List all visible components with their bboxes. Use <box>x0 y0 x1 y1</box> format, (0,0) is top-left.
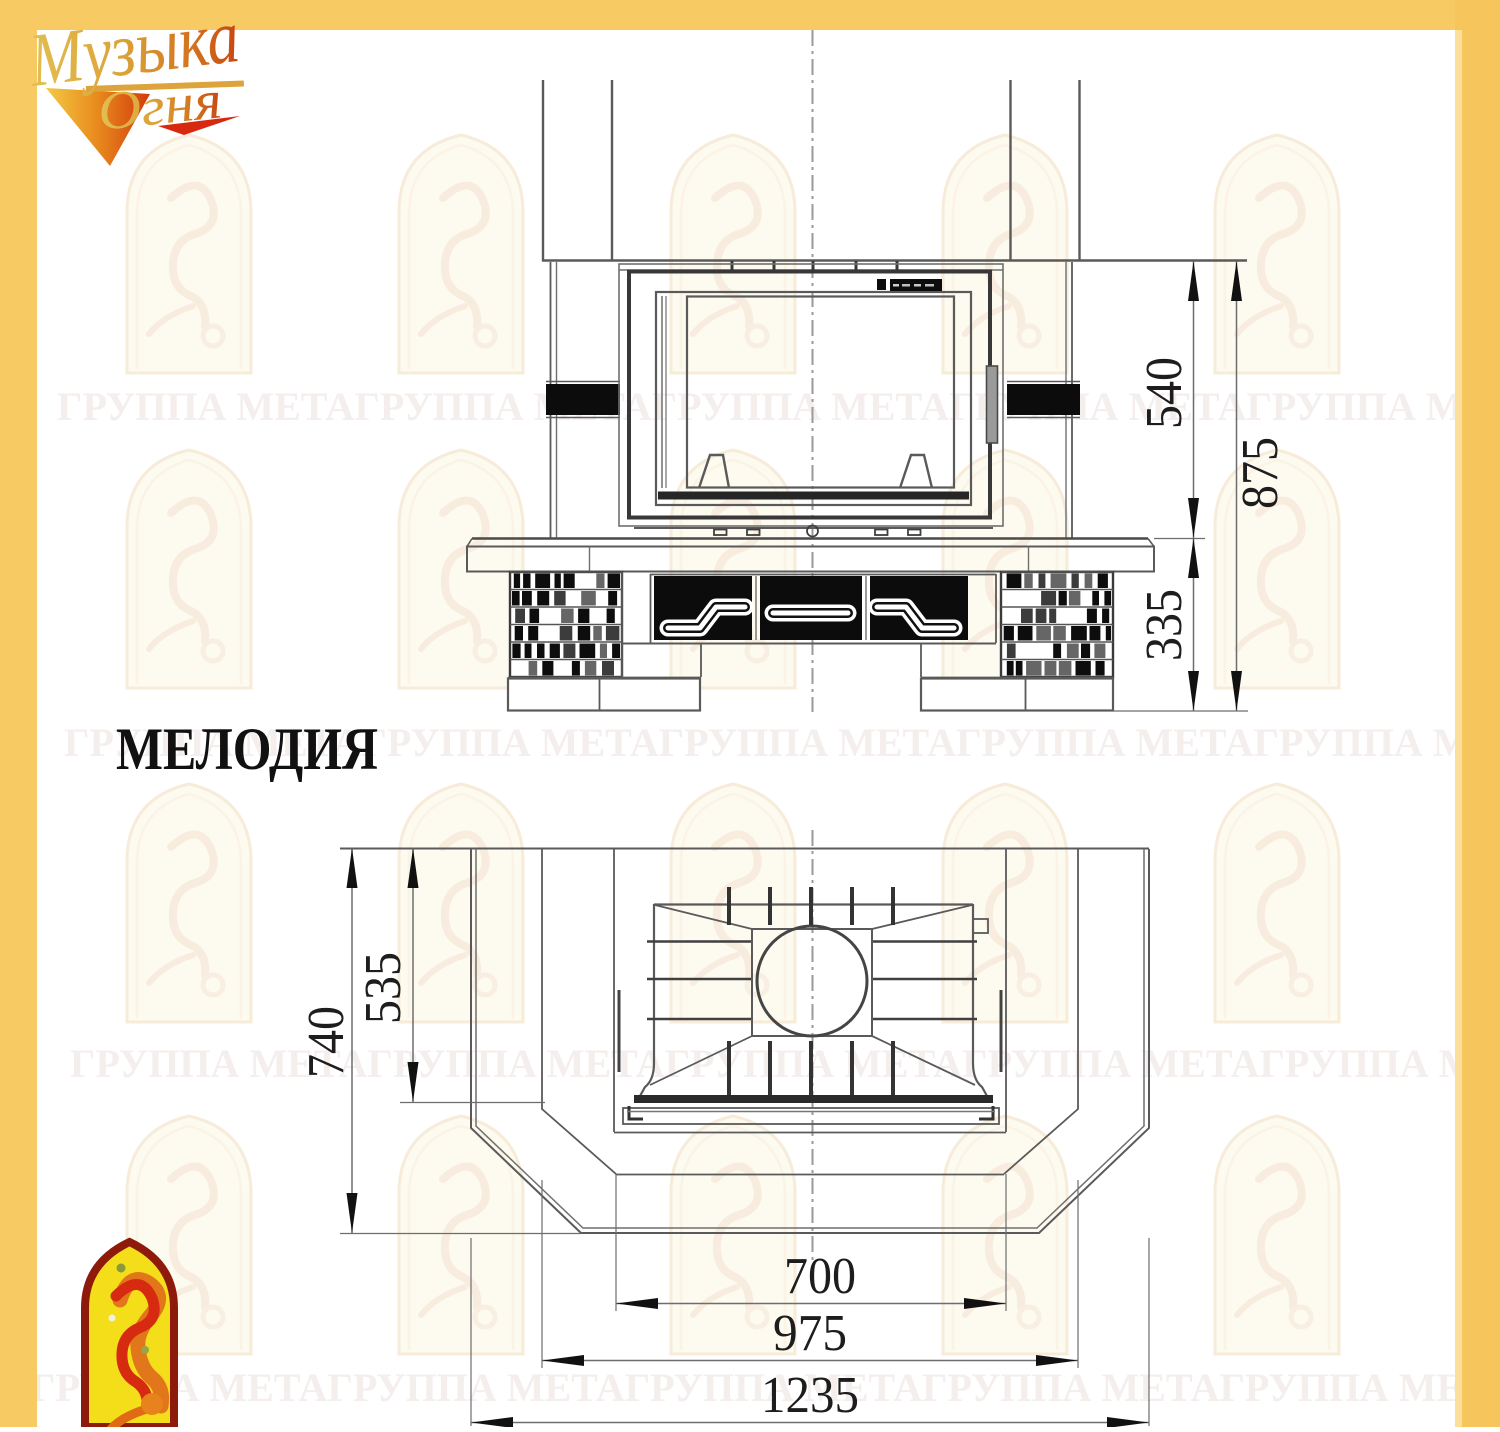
svg-text:875: 875 <box>1232 437 1289 509</box>
svg-text:700: 700 <box>784 1248 856 1305</box>
svg-text:535: 535 <box>355 952 412 1024</box>
svg-text:ГРУППА МЕТАГРУППА МЕТАГРУППА М: ГРУППА МЕТАГРУППА МЕТАГРУППА МЕТАГРУППА … <box>70 1041 1500 1086</box>
svg-text:540: 540 <box>1136 357 1193 429</box>
svg-text:335: 335 <box>1136 589 1193 661</box>
svg-text:1235: 1235 <box>761 1367 859 1424</box>
svg-text:МЕЛОДИЯ: МЕЛОДИЯ <box>116 716 378 782</box>
svg-text:975: 975 <box>773 1305 847 1362</box>
svg-text:740: 740 <box>298 1006 355 1078</box>
svg-text:ГРУППА МЕТАГРУППА МЕТАГРУППА М: ГРУППА МЕТАГРУППА МЕТАГРУППА МЕТАГРУППА … <box>57 384 1500 429</box>
